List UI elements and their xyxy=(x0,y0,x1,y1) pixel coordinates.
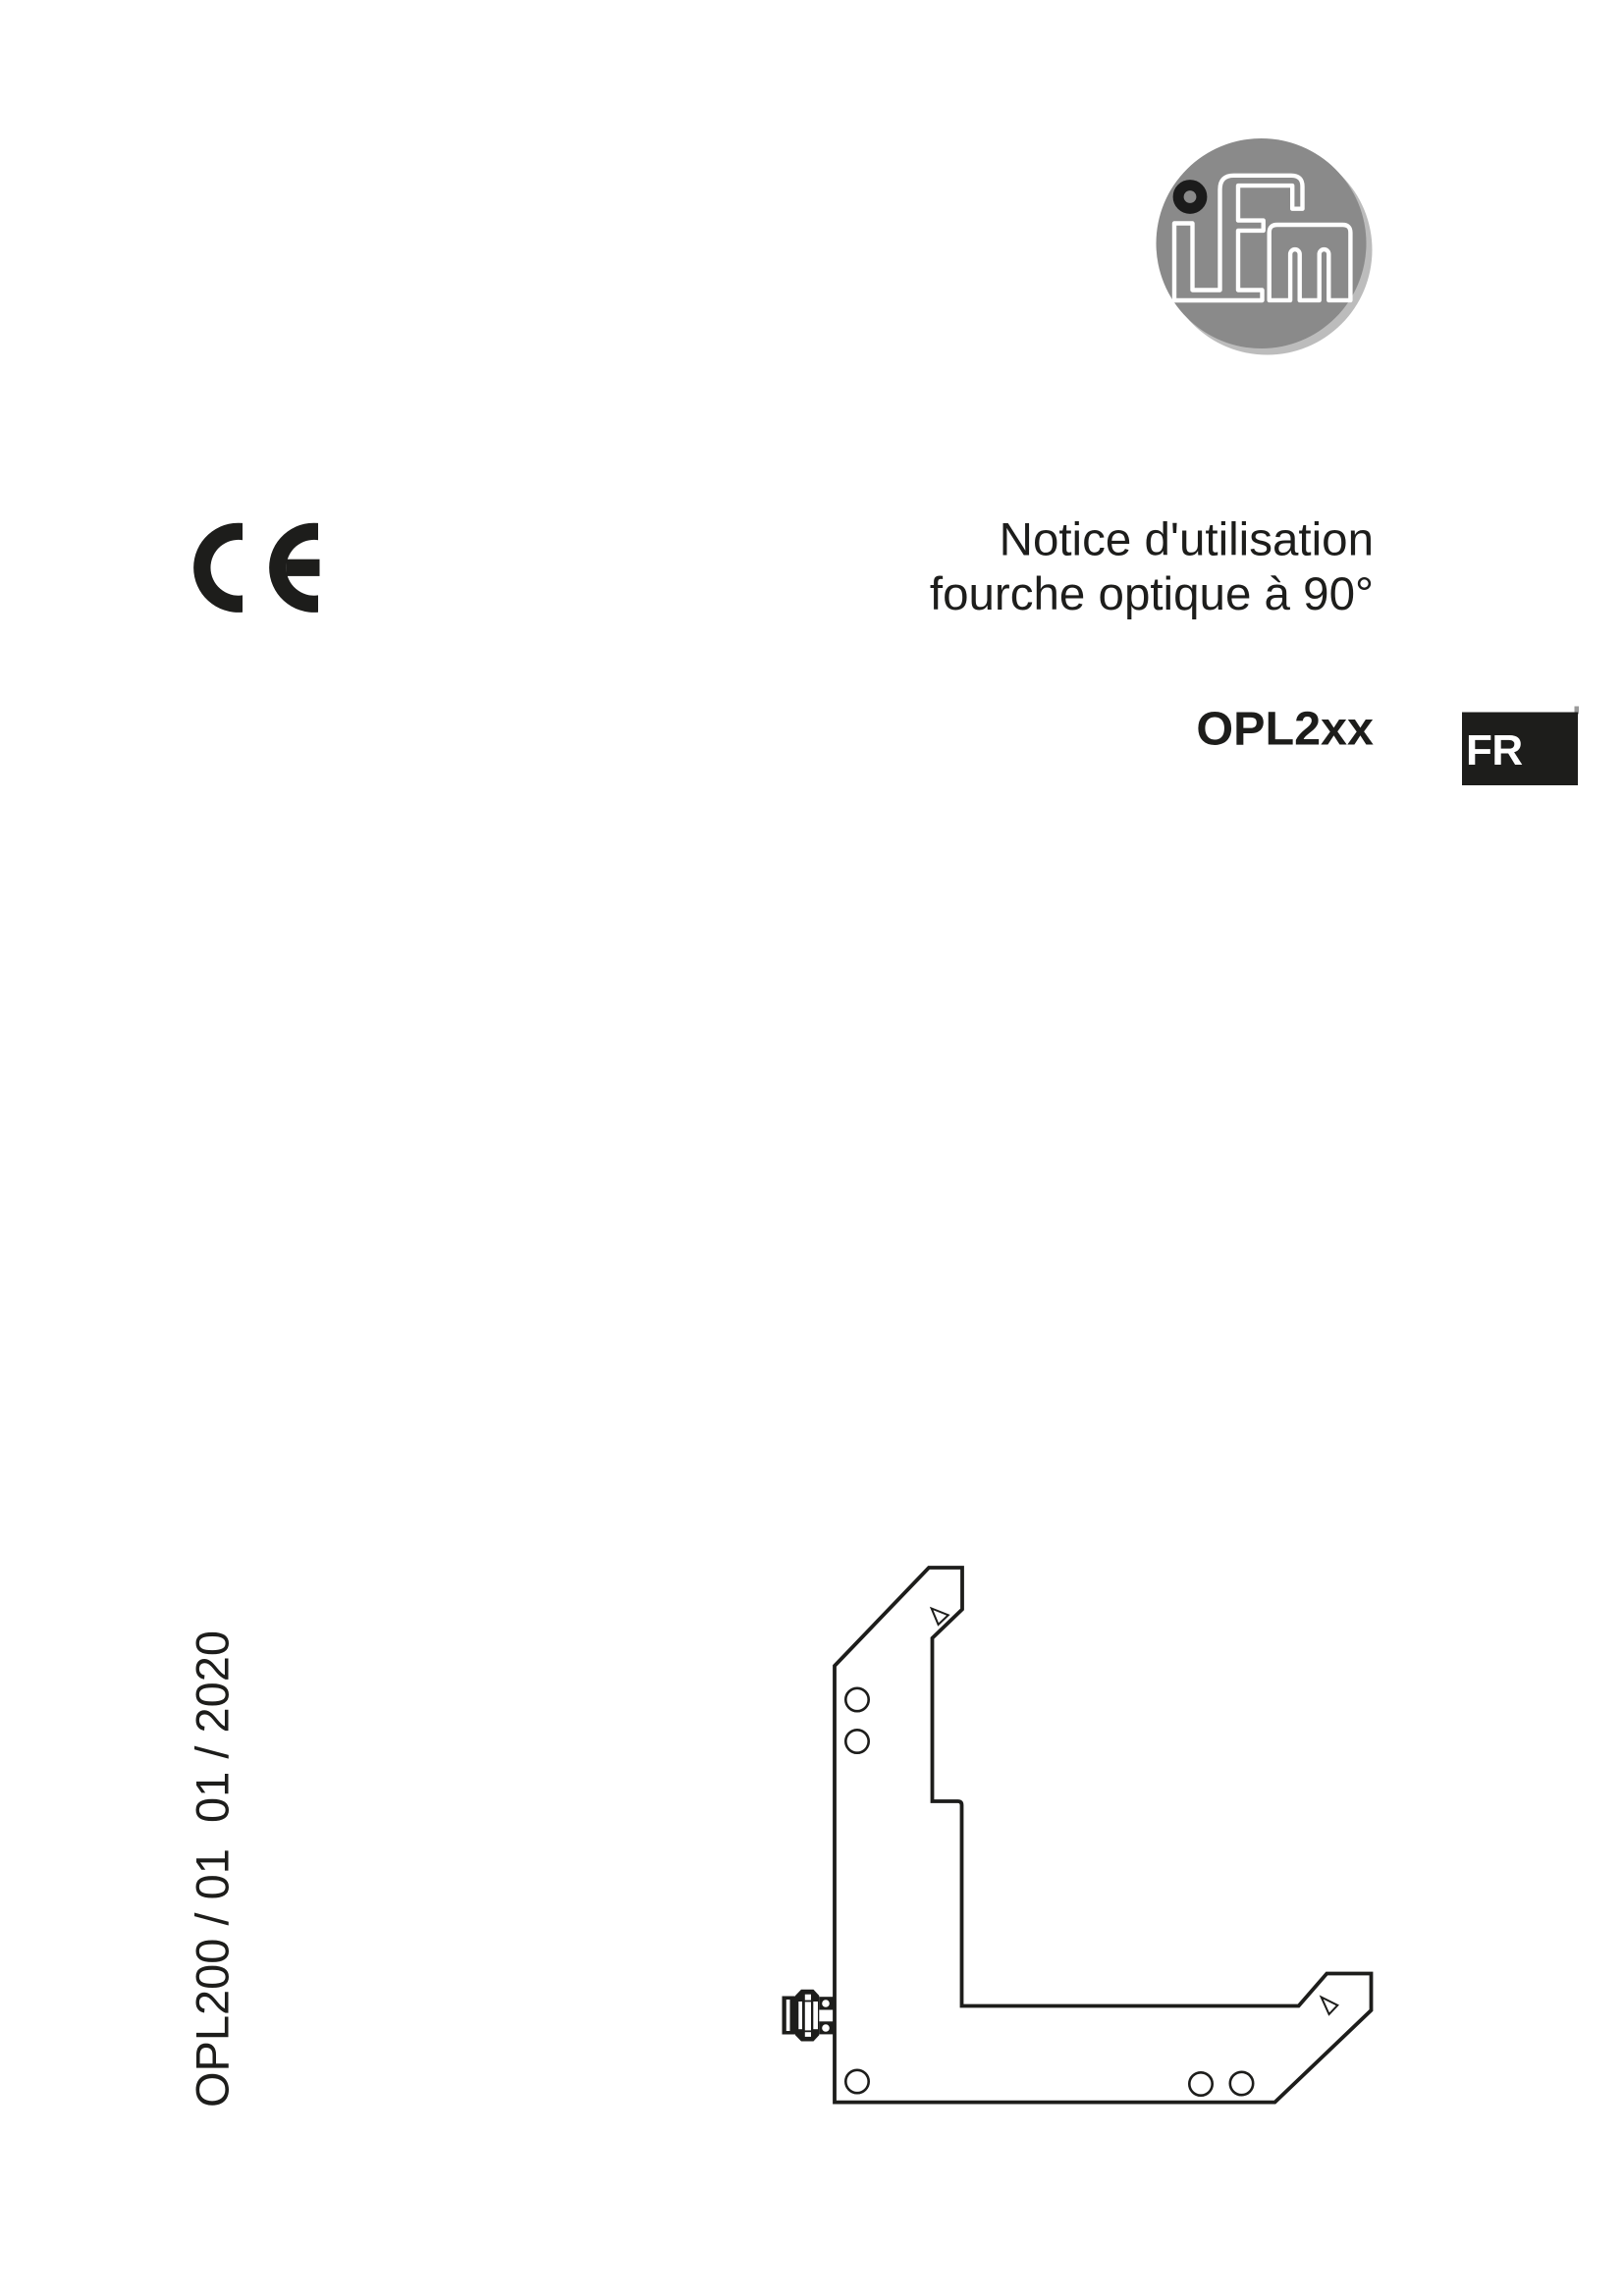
svg-text:Notice d'utilisation: Notice d'utilisation xyxy=(1000,514,1374,566)
svg-text:fourche optique à 90°: fourche optique à 90° xyxy=(930,568,1374,620)
svg-text:FR: FR xyxy=(1466,726,1523,774)
svg-text:OPL2xx: OPL2xx xyxy=(1196,703,1374,756)
svg-text:OPL200 / 01 01 / 2020: OPL200 / 01 01 / 2020 xyxy=(187,1630,239,2108)
